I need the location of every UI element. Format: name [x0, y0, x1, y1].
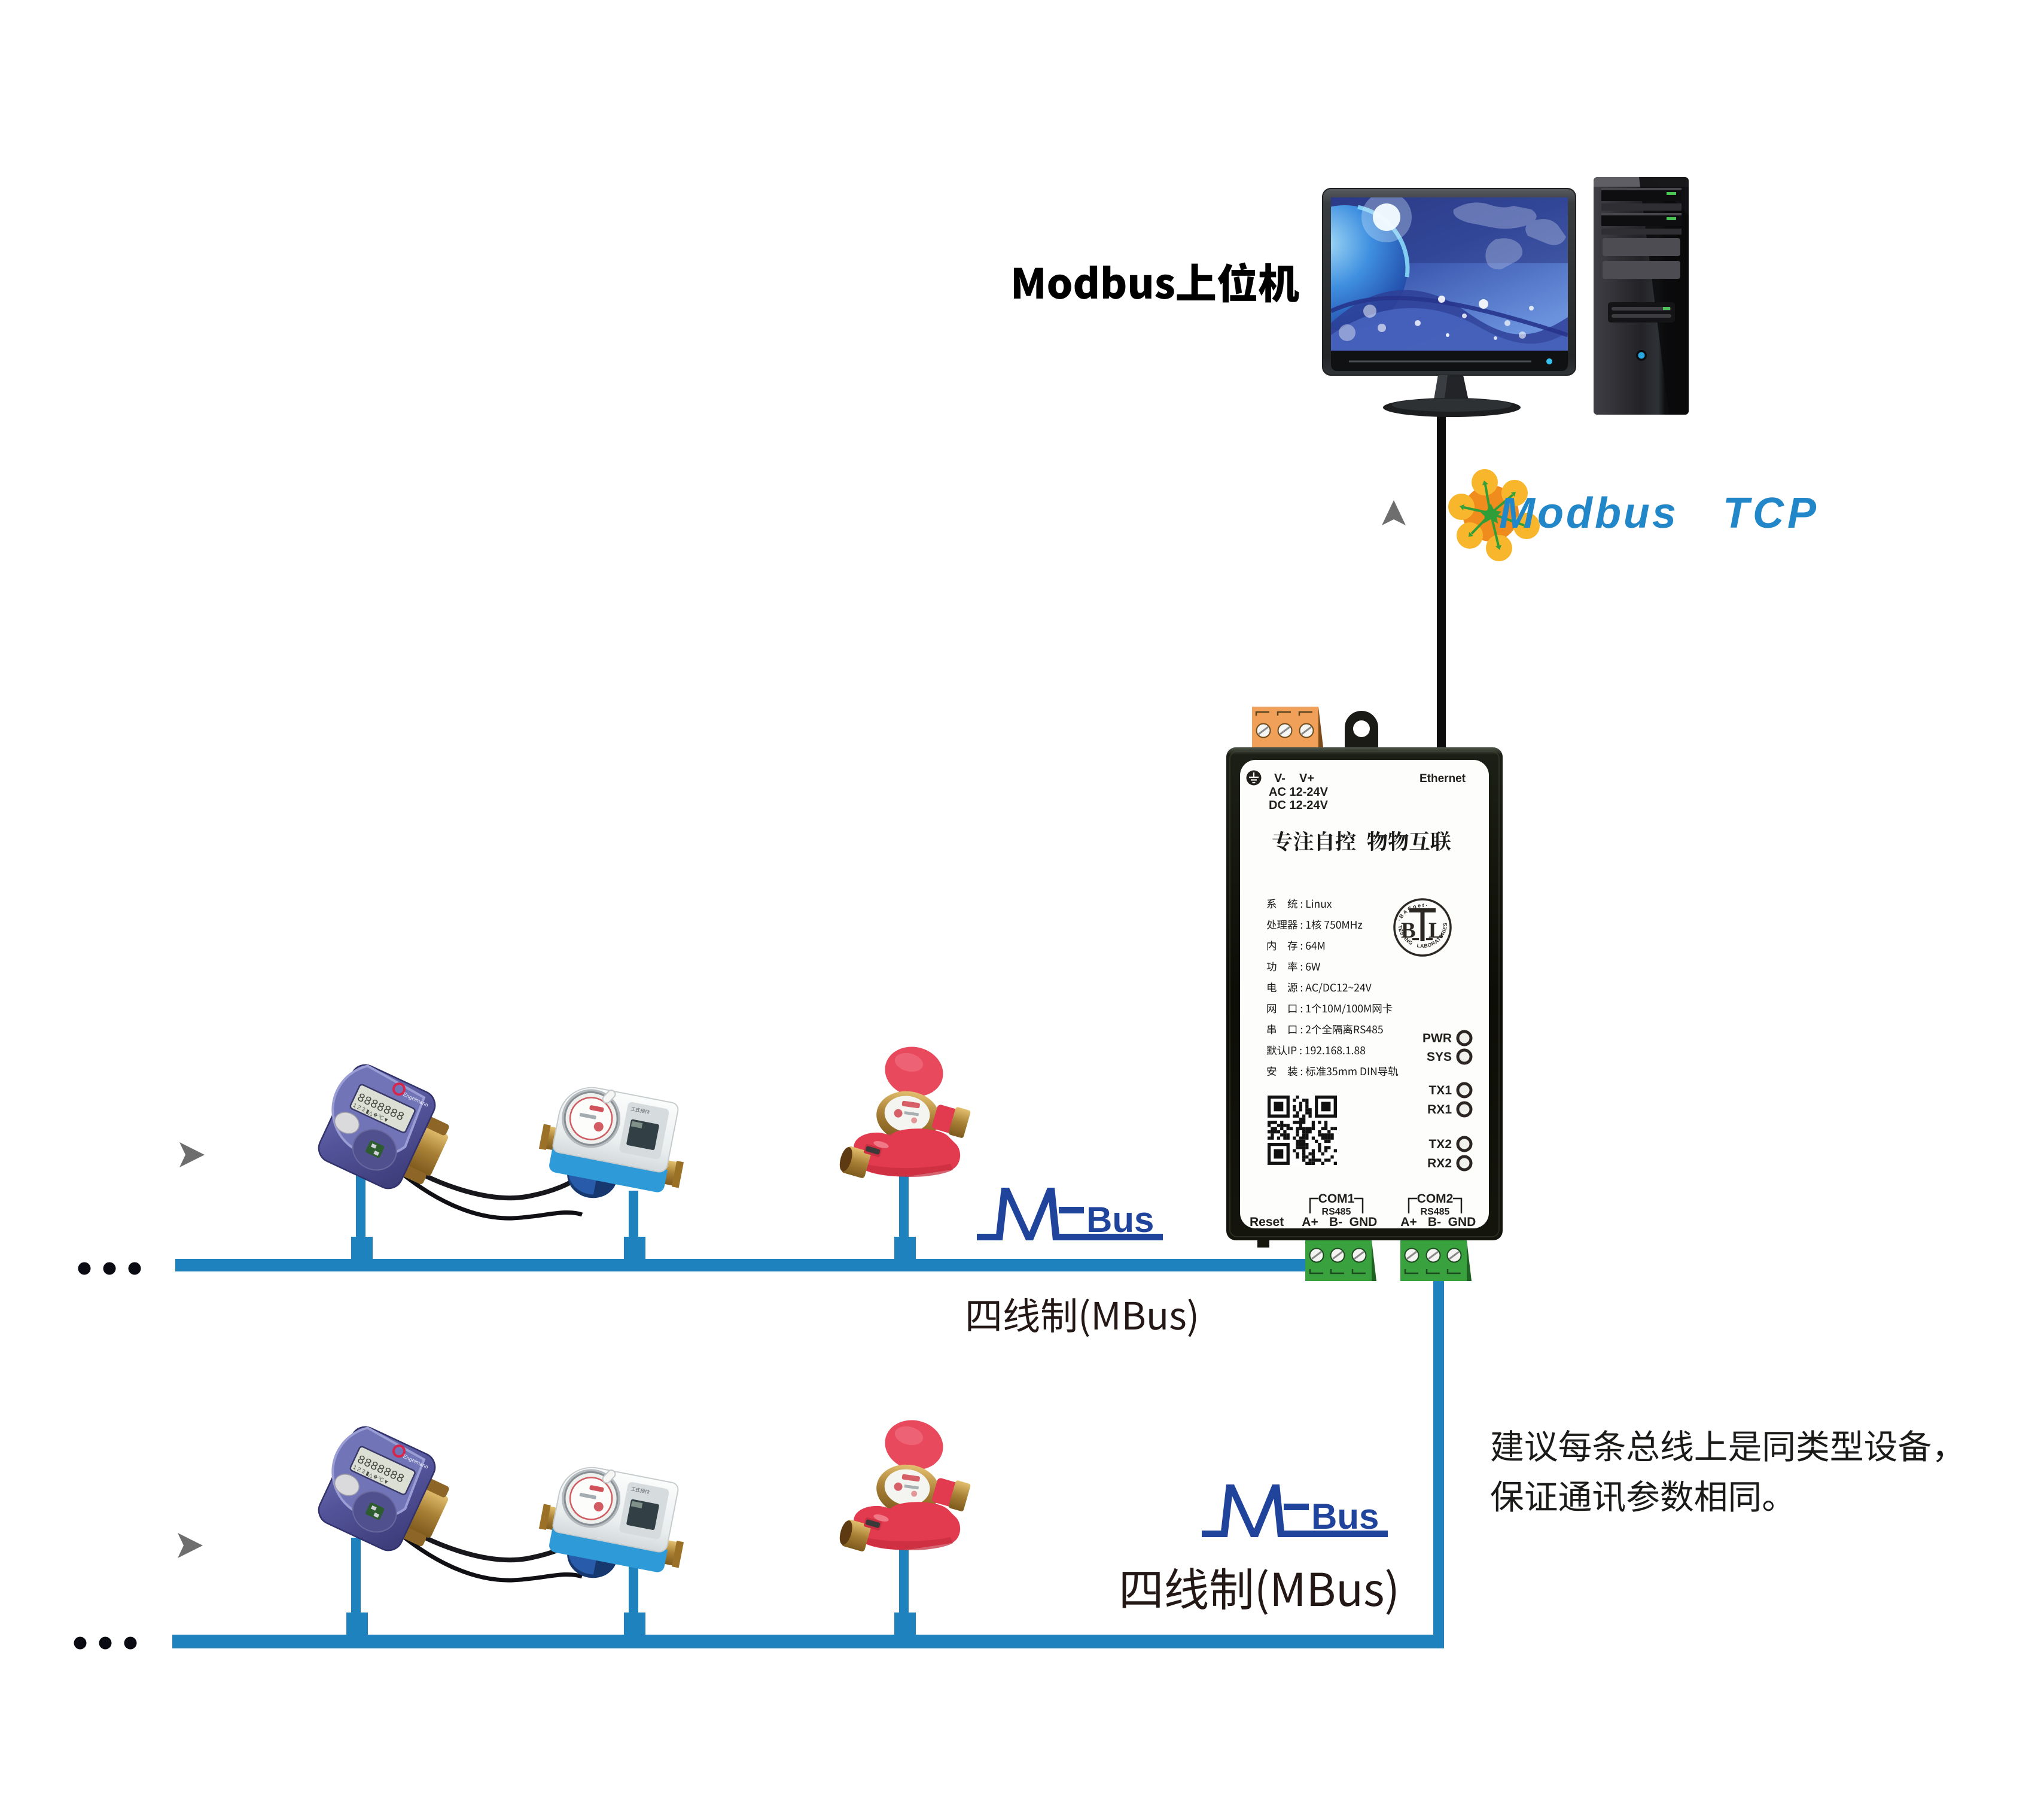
svg-text:V-: V- [1274, 772, 1286, 785]
svg-text:Modbus: Modbus [1499, 489, 1679, 537]
svg-text:TX2: TX2 [1428, 1137, 1452, 1151]
svg-text:A+: A+ [1302, 1215, 1318, 1229]
svg-text:V+: V+ [1299, 772, 1314, 785]
svg-text:COM1: COM1 [1318, 1192, 1355, 1206]
svg-text:A+: A+ [1400, 1215, 1417, 1229]
svg-text:Reset: Reset [1250, 1215, 1284, 1229]
svg-text:Bus: Bus [1086, 1200, 1154, 1240]
svg-text:AC 12-24V: AC 12-24V [1269, 786, 1329, 799]
svg-text:SYS: SYS [1427, 1050, 1452, 1064]
svg-text:RX2: RX2 [1427, 1157, 1452, 1170]
svg-text:GND: GND [1350, 1215, 1378, 1229]
svg-text:PWR: PWR [1422, 1032, 1452, 1045]
svg-text:RX1: RX1 [1427, 1103, 1452, 1116]
svg-text:TCP: TCP [1723, 489, 1820, 537]
svg-text:Bus: Bus [1311, 1496, 1379, 1537]
svg-text:B-: B- [1428, 1215, 1441, 1229]
svg-text:B-: B- [1329, 1215, 1342, 1229]
svg-text:TX1: TX1 [1428, 1084, 1452, 1097]
svg-text:Ethernet: Ethernet [1419, 772, 1466, 785]
svg-text:GND: GND [1448, 1215, 1476, 1229]
svg-text:DC 12-24V: DC 12-24V [1269, 799, 1329, 812]
svg-text:COM2: COM2 [1417, 1192, 1454, 1206]
